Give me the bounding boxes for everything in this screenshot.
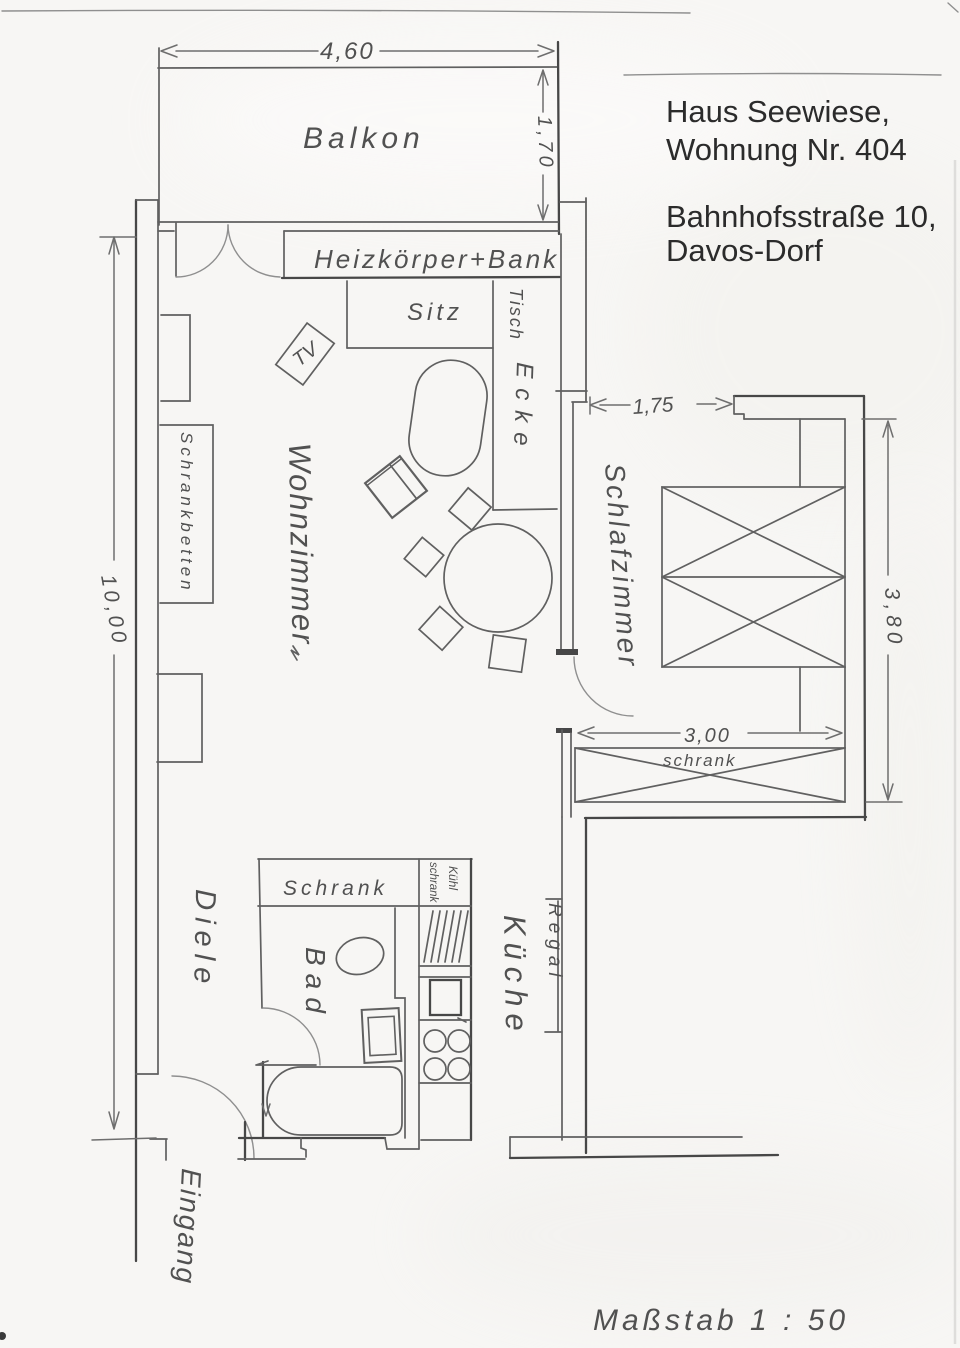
svg-text:1,75: 1,75 — [632, 393, 675, 419]
svg-text:Ecke: Ecke — [508, 362, 538, 456]
svg-text:schrank: schrank — [663, 751, 737, 770]
svg-text:Davos-Dorf: Davos-Dorf — [666, 233, 823, 268]
svg-text:Bahnhofsstraße 10,: Bahnhofsstraße 10, — [666, 199, 937, 234]
svg-text:Schrank: Schrank — [283, 877, 388, 900]
svg-text:Maßstab 1 : 50: Maßstab 1 : 50 — [593, 1304, 849, 1337]
svg-text:Küche: Küche — [497, 915, 534, 1038]
svg-text:Bad: Bad — [300, 947, 331, 1021]
svg-text:Wohnzimmer: Wohnzimmer — [282, 443, 321, 646]
svg-text:3,00: 3,00 — [684, 725, 731, 747]
svg-text:Heizkörper+Bank: Heizkörper+Bank — [314, 244, 559, 274]
svg-text:1,70: 1,70 — [533, 115, 557, 171]
svg-text:4,60: 4,60 — [320, 38, 375, 65]
svg-text:Sitz: Sitz — [407, 299, 463, 326]
svg-text:Wohnung Nr. 404: Wohnung Nr. 404 — [666, 132, 907, 167]
svg-text:Diele: Diele — [187, 889, 221, 991]
svg-text:Schrankbetten: Schrankbetten — [177, 432, 196, 594]
svg-text:3,80: 3,80 — [880, 587, 906, 649]
svg-text:Tisch: Tisch — [506, 288, 526, 341]
svg-text:Kühl: Kühl — [446, 866, 460, 890]
svg-text:Eingang: Eingang — [170, 1168, 207, 1286]
svg-text:schrank: schrank — [427, 862, 439, 904]
svg-text:Balkon: Balkon — [303, 122, 425, 155]
svg-text:Haus Seewiese,: Haus Seewiese, — [666, 94, 890, 129]
